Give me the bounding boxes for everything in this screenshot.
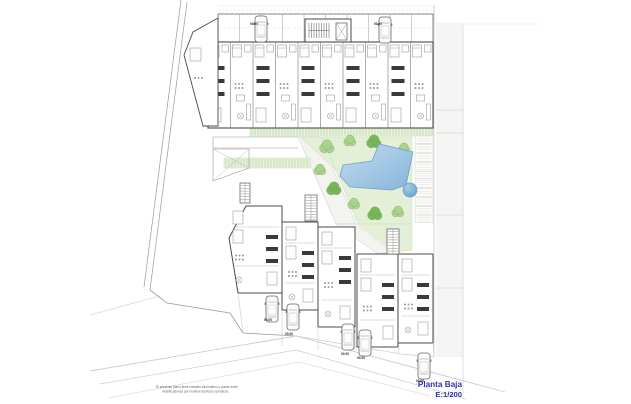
dining-dot [238, 83, 240, 85]
dining-dot [373, 83, 375, 85]
stair-wall-block [347, 92, 360, 96]
dining-dot [377, 87, 379, 89]
parking-cell [415, 145, 433, 153]
level-label: 00.00 [357, 356, 365, 360]
dining-dot [287, 83, 289, 85]
parking-cell [415, 198, 433, 206]
dining-dot [370, 310, 372, 312]
bed [233, 45, 242, 57]
car-mirror [391, 24, 392, 27]
stair-wall-block [257, 79, 270, 83]
street-curb-line [108, 362, 430, 398]
car-mirror [341, 331, 342, 334]
car-mirror [371, 337, 372, 340]
plan-title: Planta Baja [418, 380, 463, 389]
dining-dot [328, 286, 330, 288]
floor-plan-page: 00.0000.0000.0000.0000.0000.0000.00 El p… [0, 0, 631, 404]
parking-cell [415, 189, 433, 197]
car-mirror [299, 311, 300, 314]
stair-wall-block [392, 92, 405, 96]
stair-wall-block [302, 79, 315, 83]
disclaimer-line-2: modificaciones por motivos técnicos y ju… [162, 390, 229, 394]
stair-wall-block [417, 307, 429, 311]
left-wing-unit [184, 18, 218, 126]
dining-dot [325, 87, 327, 89]
bed [346, 108, 356, 122]
bed [368, 45, 377, 57]
bed [361, 259, 371, 272]
dining-dot [235, 83, 237, 85]
parked-car [254, 16, 269, 42]
stair-wall-block [392, 66, 405, 70]
stair-wall-block [257, 92, 270, 96]
street-curb-line [100, 350, 466, 399]
stair-wall-block [266, 247, 278, 251]
level-label: 00.00 [374, 22, 382, 26]
dining-dot [377, 83, 379, 85]
parking-cell [415, 154, 433, 162]
tree-canopy [316, 164, 325, 173]
bed [402, 278, 412, 291]
parked-car [378, 17, 393, 43]
bed [361, 278, 371, 291]
dining-dot [328, 83, 330, 85]
bed [233, 230, 243, 243]
dining-dot [283, 87, 285, 89]
dining-dot [325, 83, 327, 85]
dining-dot [328, 282, 330, 284]
dining-dot [280, 87, 282, 89]
car-mirror [430, 360, 431, 363]
parking-cell [415, 171, 433, 179]
dining-dot [367, 310, 369, 312]
car-mirror [278, 303, 279, 306]
dining-dot [295, 271, 297, 273]
dining-dot [201, 77, 203, 79]
round-plunge-pool [403, 183, 417, 197]
level-label: 00.00 [250, 22, 258, 26]
stair-wall-block [266, 259, 278, 263]
site-boundary-line [144, 0, 181, 287]
dining-dot [411, 304, 413, 306]
dining-dot [370, 87, 372, 89]
stair-wall-block [302, 263, 314, 267]
stair-wall-block [417, 295, 429, 299]
bed [301, 108, 311, 122]
dining-dot [408, 304, 410, 306]
dining-dot [288, 271, 290, 273]
bed [255, 45, 264, 57]
dining-dot [280, 83, 282, 85]
dining-dot [194, 77, 196, 79]
right-road-strip [436, 25, 463, 357]
stair-wall-block [382, 283, 394, 287]
dining-dot [332, 83, 334, 85]
car-mirror [358, 337, 359, 340]
stair-wall-block [302, 275, 314, 279]
bed [345, 45, 354, 57]
dining-dot [363, 306, 365, 308]
dining-dot [198, 77, 200, 79]
dining-dot [328, 87, 330, 89]
dining-dot [373, 87, 375, 89]
bed [286, 227, 296, 240]
stair-wall-block [339, 268, 351, 272]
dining-dot [324, 282, 326, 284]
car-mirror [286, 311, 287, 314]
tree-canopy [370, 207, 380, 217]
dining-dot [235, 87, 237, 89]
stair-wall-block [257, 66, 270, 70]
bed [322, 232, 332, 245]
bed [233, 211, 243, 224]
parking-cell [415, 136, 433, 144]
dining-dot [324, 286, 326, 288]
dining-dot [411, 308, 413, 310]
tree [344, 135, 356, 146]
dining-dot [242, 255, 244, 257]
parking-cell [415, 215, 433, 223]
stair-wall-block [302, 66, 315, 70]
site-boundary-line [150, 2, 187, 290]
bed [402, 259, 412, 272]
tree-canopy [394, 206, 403, 215]
bed [256, 108, 266, 122]
disclaimer-line-1: El presente plano tiene carácter informa… [156, 385, 239, 389]
car-mirror [417, 360, 418, 363]
dining-dot [235, 259, 237, 261]
bed [278, 45, 287, 57]
driveway-line [398, 347, 399, 354]
level-label: 00.00 [341, 352, 349, 356]
stair-wall-block [382, 295, 394, 299]
stair-wall-block [339, 256, 351, 260]
dining-dot [332, 87, 334, 89]
dining-dot [408, 308, 410, 310]
dining-dot [242, 87, 244, 89]
dining-dot [415, 83, 417, 85]
dining-dot [242, 83, 244, 85]
dining-dot [238, 87, 240, 89]
dining-dot [404, 308, 406, 310]
dining-dot [288, 275, 290, 277]
bed [323, 45, 332, 57]
stair-wall-block [339, 280, 351, 284]
stair-wall-block [302, 251, 314, 255]
bed [390, 45, 399, 57]
stair-wall-block [347, 66, 360, 70]
parked-car [417, 353, 432, 379]
dining-dot [422, 87, 424, 89]
stair-wall-block [392, 79, 405, 83]
tree-canopy [369, 135, 379, 145]
bed [190, 48, 201, 61]
floor-plan-drawing: 00.0000.0000.0000.0000.0000.0000.00 El p… [0, 0, 631, 404]
dining-dot [370, 306, 372, 308]
parking-cell [415, 206, 433, 214]
stair-wall-block [382, 307, 394, 311]
bed [286, 246, 296, 259]
dining-dot [367, 306, 369, 308]
dining-dot [242, 259, 244, 261]
parked-car [341, 324, 356, 350]
stair-wall-block [302, 92, 315, 96]
stair-wall-block [266, 235, 278, 239]
dining-dot [331, 286, 333, 288]
tree-canopy [322, 140, 332, 150]
parking-cell [415, 180, 433, 188]
parked-car [358, 330, 373, 356]
bed [391, 108, 401, 122]
car-mirror [267, 23, 268, 26]
car-mirror [354, 331, 355, 334]
dining-dot [292, 275, 294, 277]
bed [413, 45, 422, 57]
street-curb-line [90, 296, 160, 315]
dining-dot [292, 271, 294, 273]
dining-dot [370, 83, 372, 85]
bed [300, 45, 309, 57]
dining-dot [418, 83, 420, 85]
dining-dot [363, 310, 365, 312]
parking-cell [415, 162, 433, 170]
dining-dot [239, 255, 241, 257]
bed [322, 251, 332, 264]
car-mirror [265, 303, 266, 306]
stair-wall-block [347, 79, 360, 83]
dining-dot [418, 87, 420, 89]
dining-dot [295, 275, 297, 277]
dining-dot [235, 255, 237, 257]
tree-canopy [346, 135, 355, 144]
level-label: 00.00 [285, 332, 293, 336]
dining-dot [404, 304, 406, 306]
plan-scale: E:1/200 [435, 390, 462, 399]
tree-canopy [329, 182, 339, 192]
level-label: 00.00 [264, 318, 272, 322]
parked-car [286, 304, 301, 330]
dining-dot [283, 83, 285, 85]
dining-dot [331, 282, 333, 284]
dining-dot [422, 83, 424, 85]
tree-canopy [350, 198, 359, 207]
stair-wall-block [417, 283, 429, 287]
dining-dot [239, 259, 241, 261]
dining-dot [287, 87, 289, 89]
dining-dot [415, 87, 417, 89]
